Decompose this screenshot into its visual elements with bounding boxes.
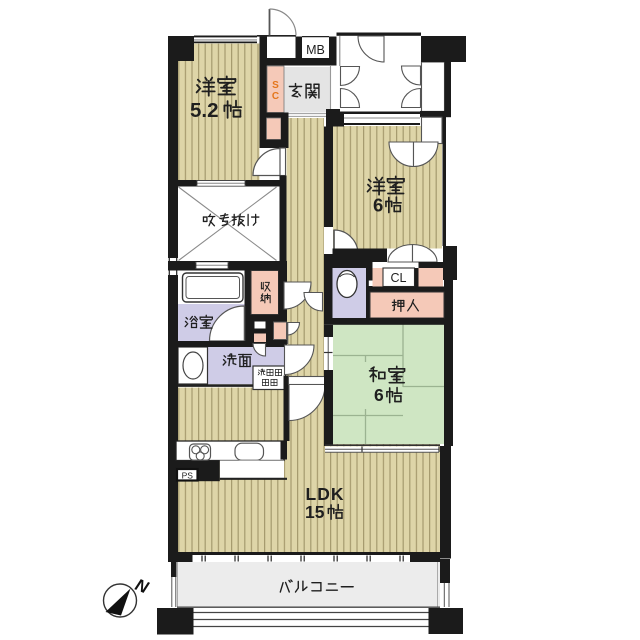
- svg-text:LDK: LDK: [306, 484, 345, 504]
- svg-text:SC: SC: [272, 80, 279, 102]
- svg-text:PS: PS: [182, 470, 194, 480]
- svg-text:MB: MB: [306, 43, 325, 57]
- svg-text:CL: CL: [391, 271, 407, 285]
- svg-text:5.2: 5.2: [190, 99, 219, 122]
- svg-text:15: 15: [305, 502, 325, 522]
- svg-text:6: 6: [374, 385, 384, 405]
- svg-text:6: 6: [373, 195, 383, 216]
